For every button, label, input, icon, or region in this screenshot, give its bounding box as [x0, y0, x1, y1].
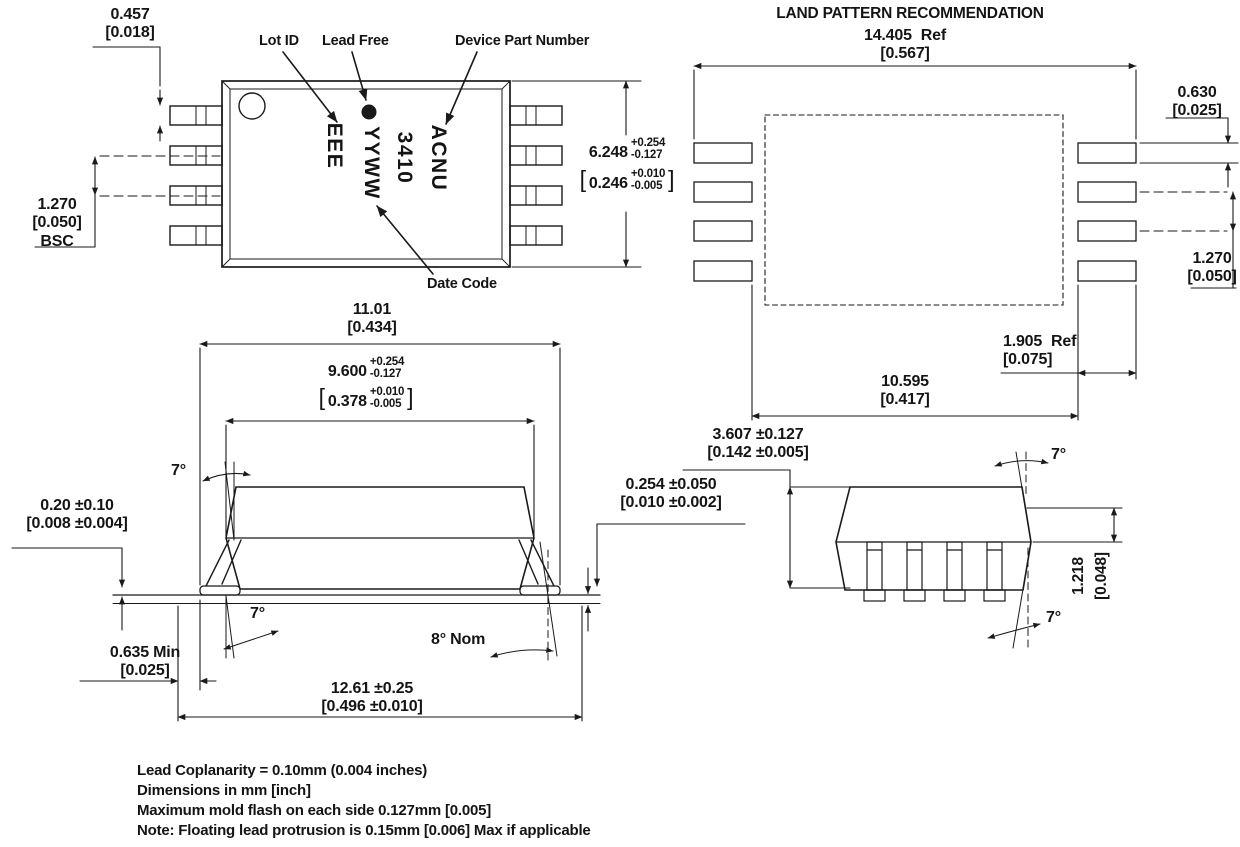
callout-date-code: Date Code [427, 276, 497, 292]
dim-body-width-mm-value: 6.248 [589, 144, 628, 162]
land-pattern-pads [694, 115, 1136, 305]
dim-body-length-inch: [ 0.378 +0.010 -0.005 ] [319, 386, 414, 411]
marking-part-number-line1: 3410 [392, 132, 416, 185]
dim-foot-length: 0.635 Min [0.025] [110, 644, 180, 681]
note-mold-flash: Maximum mold flash on each side 0.127mm … [137, 801, 591, 821]
dim-inner-span: 10.595 [0.417] [880, 373, 929, 410]
dim-standoff: 0.20 ±0.10 [0.008 ±0.004] [26, 497, 127, 534]
dim-body-width-inch-tol: +0.010 -0.005 [631, 168, 665, 193]
dim-lead-width: 0.457 [0.018] [105, 6, 154, 43]
marking-date-code: YYWW [359, 126, 383, 200]
marking-lot-id: EEE [322, 123, 346, 170]
dim-lead-span: 11.01 [0.434] [347, 301, 396, 338]
dim-body-width-mm: 6.248 +0.254 -0.127 [589, 137, 665, 162]
land-pattern-dimension-lines [694, 66, 1238, 420]
angle-end-bottom: 7° [1046, 609, 1061, 627]
dim-body-width-inch-value: 0.246 [589, 175, 628, 193]
drawing-notes: Lead Coplanarity = 0.10mm (0.004 inches)… [137, 761, 591, 841]
dim-pitch-note: BSC [32, 233, 81, 251]
dim-body-length-mm: 9.600 +0.254 -0.127 [328, 356, 404, 381]
end-view-body [836, 487, 1031, 601]
land-pattern-title: LAND PATTERN RECOMMENDATION [776, 5, 1044, 23]
dim-pad-length: 1.905Ref [0.075] [1003, 333, 1076, 370]
dim-lead-width-mm: 0.457 [105, 6, 154, 24]
dim-lead-width-inch: [0.018] [105, 24, 154, 42]
dim-pitch-mm: 1.270 [32, 196, 81, 214]
lead-free-dot-icon [362, 105, 377, 120]
dim-overall-width: 14.405Ref [0.567] [864, 27, 946, 64]
callout-device-part-number: Device Part Number [455, 33, 589, 49]
dim-pad-height: 0.630 [0.025] [1172, 84, 1221, 121]
package-drawing-sheet: 0.457 [0.018] Lot ID Lead Free Device Pa… [0, 0, 1240, 847]
angle-lead-top: 7° [171, 462, 186, 480]
note-lead-protrusion: Note: Floating lead protrusion is 0.15mm… [137, 821, 591, 841]
dim-body-width-inch: [ 0.246 +0.010 -0.005 ] [580, 168, 675, 193]
dim-height: 3.607 ±0.127 [0.142 ±0.005] [707, 426, 808, 463]
dim-body-edge-inch: [0.048] [1093, 552, 1111, 600]
angle-end-top: 7° [1051, 446, 1066, 464]
note-coplanarity: Lead Coplanarity = 0.10mm (0.004 inches) [137, 761, 591, 781]
note-units: Dimensions in mm [inch] [137, 781, 591, 801]
callout-lead-free: Lead Free [322, 33, 389, 49]
callout-lot-id: Lot ID [259, 33, 299, 49]
dim-body-width-mm-tol: +0.254 -0.127 [631, 137, 665, 162]
dim-lead-thickness: 0.254 ±0.050 [0.010 ±0.002] [620, 476, 721, 513]
marking-part-number-line2: ACNU [426, 125, 450, 192]
angle-lead-bottom: 7° [250, 605, 265, 623]
drawing-linework [0, 0, 1240, 847]
dim-pitch: 1.270 [0.050] BSC [32, 196, 81, 251]
dim-pitch-inch: [0.050] [32, 214, 81, 232]
dim-overall-length: 12.61 ±0.25 [0.496 ±0.010] [321, 680, 422, 717]
pin1-marker-icon [239, 93, 265, 119]
side-view-body [113, 487, 600, 604]
dim-pad-pitch: 1.270 [0.050] [1187, 250, 1236, 287]
angle-foot: 8° Nom [431, 631, 485, 649]
package-outline-dashed [765, 115, 1063, 305]
dim-body-edge-mm: 1.218 [1070, 557, 1088, 595]
